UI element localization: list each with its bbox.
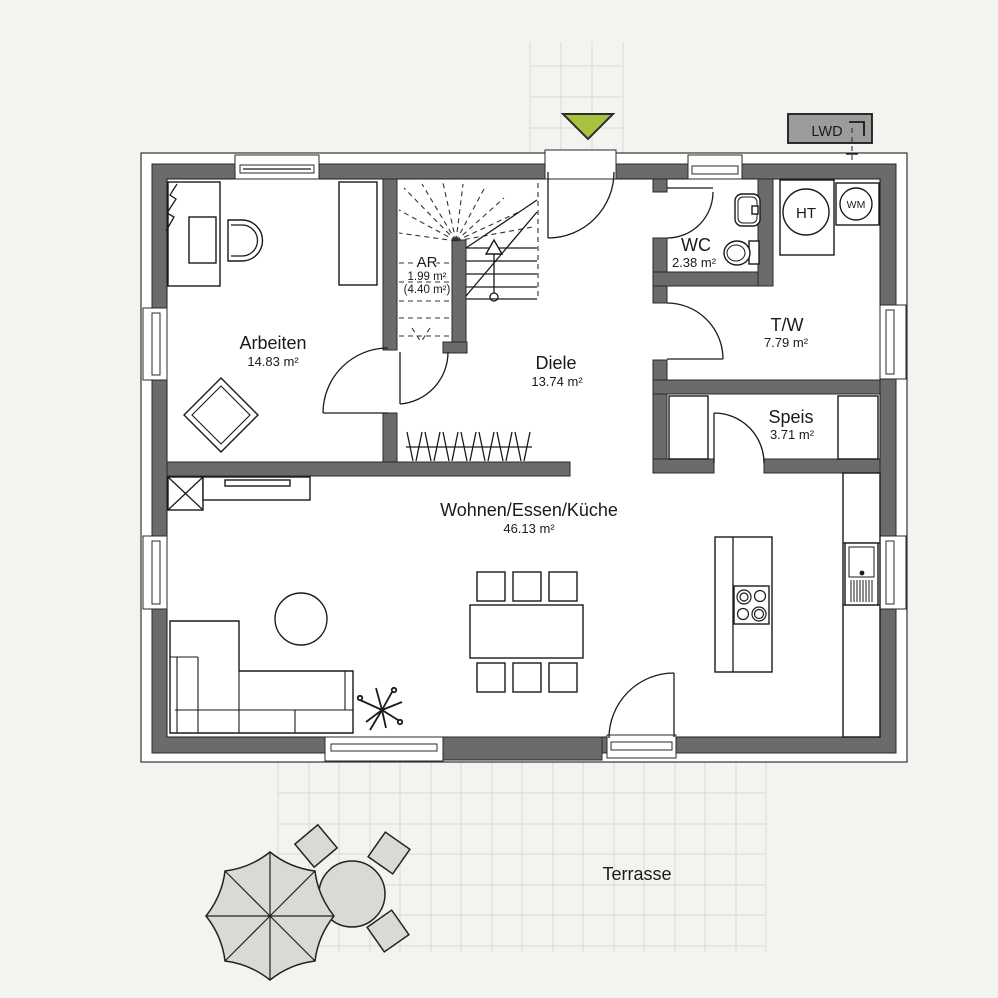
window-wc <box>688 155 742 179</box>
room-label-terrasse: Terrasse <box>602 864 671 884</box>
window-tw-right <box>880 305 906 379</box>
coffee-table <box>275 593 327 645</box>
exterior-wall-segment <box>443 737 602 760</box>
room-label-wc: WC <box>681 235 711 255</box>
room-area-speis: 3.71 m² <box>770 427 815 442</box>
room-label-arbeiten: Arbeiten <box>239 333 306 353</box>
dining-chair <box>513 663 541 692</box>
dining-chair <box>513 572 541 601</box>
cabinet <box>339 182 377 285</box>
parasol-icon <box>206 852 334 980</box>
room-area-ar: 1.99 m² <box>408 271 447 283</box>
window-kueche-right <box>880 536 906 609</box>
floorplan-page: Arbeiten 14.83 m² AR 1.99 m² (4.40 m²) D… <box>0 0 998 998</box>
dining-table <box>470 605 583 658</box>
dining-chair <box>549 663 577 692</box>
room-area-diele: 13.74 m² <box>531 374 583 389</box>
room-label-tw: T/W <box>771 315 804 335</box>
room-label-wohnen: Wohnen/Essen/Küche <box>440 500 618 520</box>
shelf <box>669 396 708 459</box>
desk-unit <box>189 217 216 263</box>
window-wohnen-left <box>143 536 167 609</box>
tv <box>225 480 290 486</box>
room-area-arbeiten: 14.83 m² <box>247 354 299 369</box>
window-arbeiten-left <box>143 308 167 380</box>
room-label-speis: Speis <box>768 407 813 427</box>
room-label-diele: Diele <box>535 353 576 373</box>
room-area-wc: 2.38 m² <box>672 255 717 270</box>
dining-chair <box>477 572 505 601</box>
kitchen-sink <box>845 543 878 605</box>
dining-chair <box>477 663 505 692</box>
dining-chair <box>549 572 577 601</box>
room-area-ar-total: (4.40 m²) <box>404 284 451 296</box>
room-label-ar: AR <box>417 254 438 271</box>
shelf <box>838 396 878 459</box>
floorplan-drawing: Arbeiten 14.83 m² AR 1.99 m² (4.40 m²) D… <box>0 0 998 998</box>
window-arbeiten <box>235 155 319 179</box>
room-area-tw: 7.79 m² <box>764 335 809 350</box>
wm-label: WM <box>847 199 866 211</box>
lwd-label: LWD <box>811 124 842 140</box>
ht-label: HT <box>796 205 816 222</box>
window-wohnen-bottom <box>325 737 443 761</box>
room-area-wohnen: 46.13 m² <box>503 521 555 536</box>
